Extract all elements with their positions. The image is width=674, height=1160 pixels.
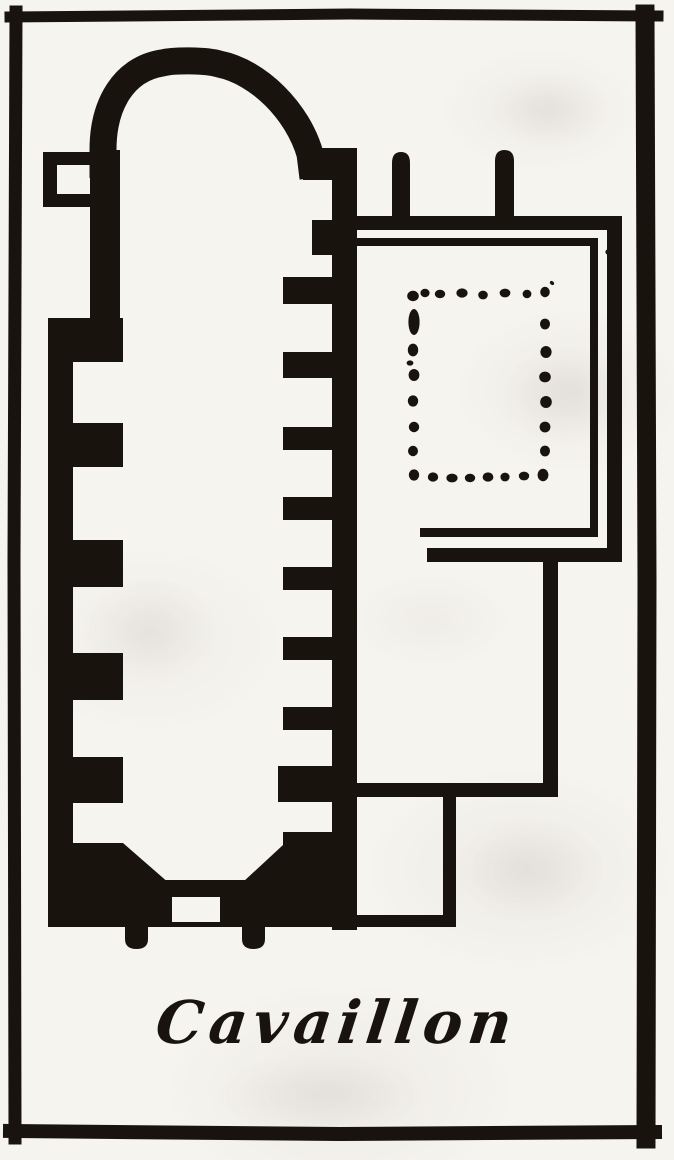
book-page: Cavaillon bbox=[0, 0, 674, 1160]
cloister bbox=[357, 150, 622, 562]
cloister-outer-wall bbox=[357, 216, 622, 562]
floor-plan-drawing bbox=[0, 0, 674, 1160]
west-wall bbox=[48, 880, 357, 949]
cloister-column-dots bbox=[407, 280, 555, 482]
figure-caption: Cavaillon bbox=[0, 988, 674, 1057]
west-door bbox=[172, 897, 220, 922]
cloister-north-stubs bbox=[392, 150, 514, 218]
cloister-inner-wall bbox=[357, 238, 598, 537]
north-transept-chapel bbox=[43, 150, 120, 318]
church-plan bbox=[43, 61, 357, 949]
annex-rooms bbox=[357, 557, 558, 927]
buttress bbox=[125, 927, 148, 949]
left-wall-and-chapel-stubs bbox=[48, 318, 170, 927]
apse bbox=[103, 61, 334, 180]
buttress bbox=[242, 927, 265, 949]
right-wall-and-chapel-stubs bbox=[243, 148, 357, 930]
